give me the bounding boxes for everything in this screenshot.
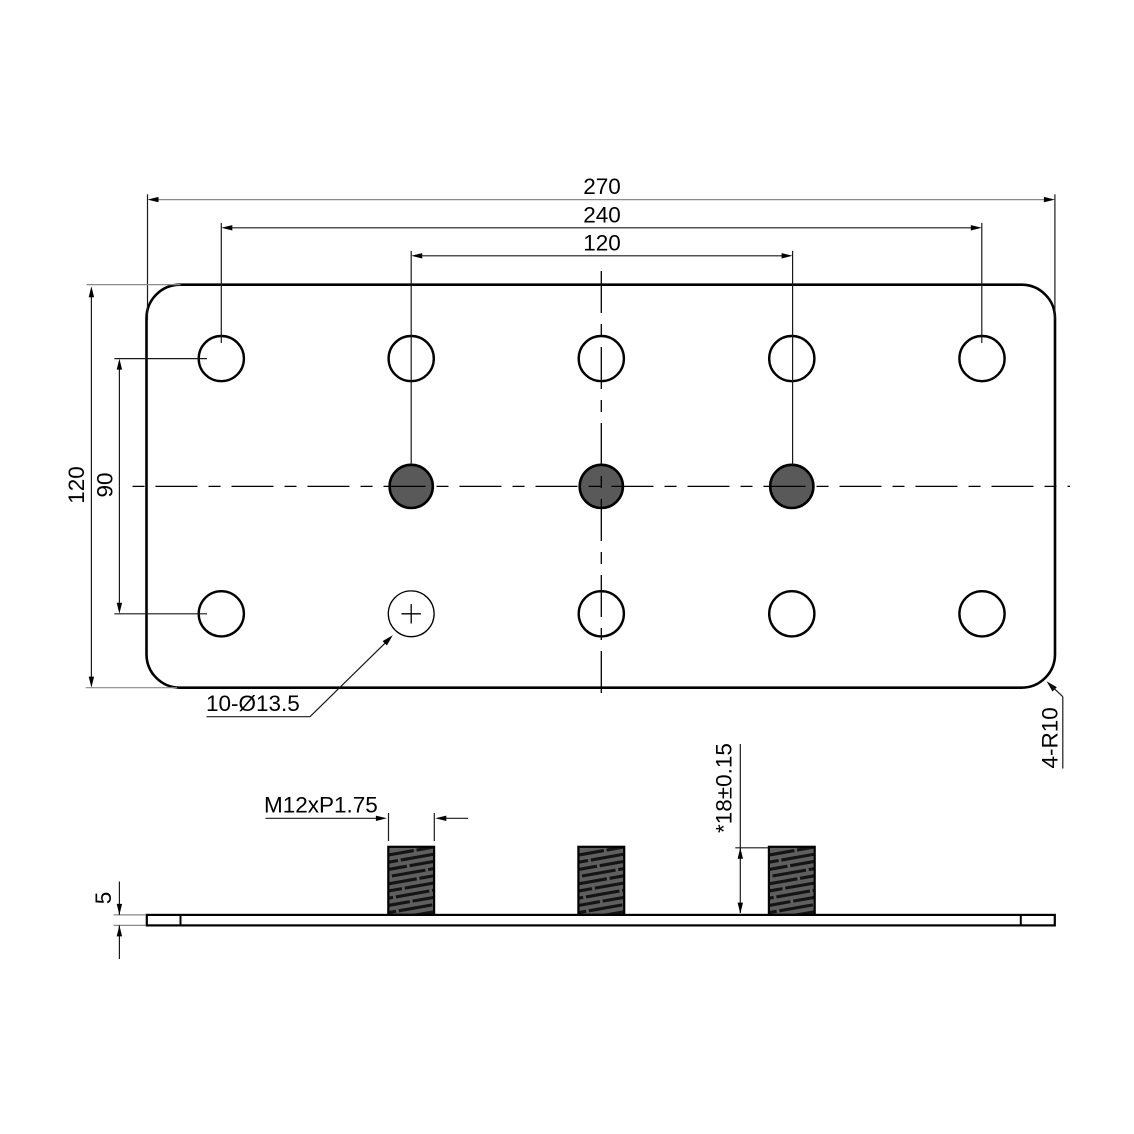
svg-text:*18±0.15: *18±0.15 bbox=[712, 743, 737, 833]
svg-text:120: 120 bbox=[64, 466, 89, 504]
svg-text:240: 240 bbox=[583, 202, 621, 227]
svg-text:90: 90 bbox=[92, 472, 117, 497]
svg-text:4-R10: 4-R10 bbox=[1038, 707, 1063, 768]
svg-text:5: 5 bbox=[91, 892, 116, 905]
svg-text:120: 120 bbox=[583, 230, 621, 255]
svg-text:270: 270 bbox=[583, 174, 621, 199]
svg-text:10-Ø13.5: 10-Ø13.5 bbox=[206, 691, 300, 716]
svg-text:M12xP1.75: M12xP1.75 bbox=[264, 793, 378, 818]
